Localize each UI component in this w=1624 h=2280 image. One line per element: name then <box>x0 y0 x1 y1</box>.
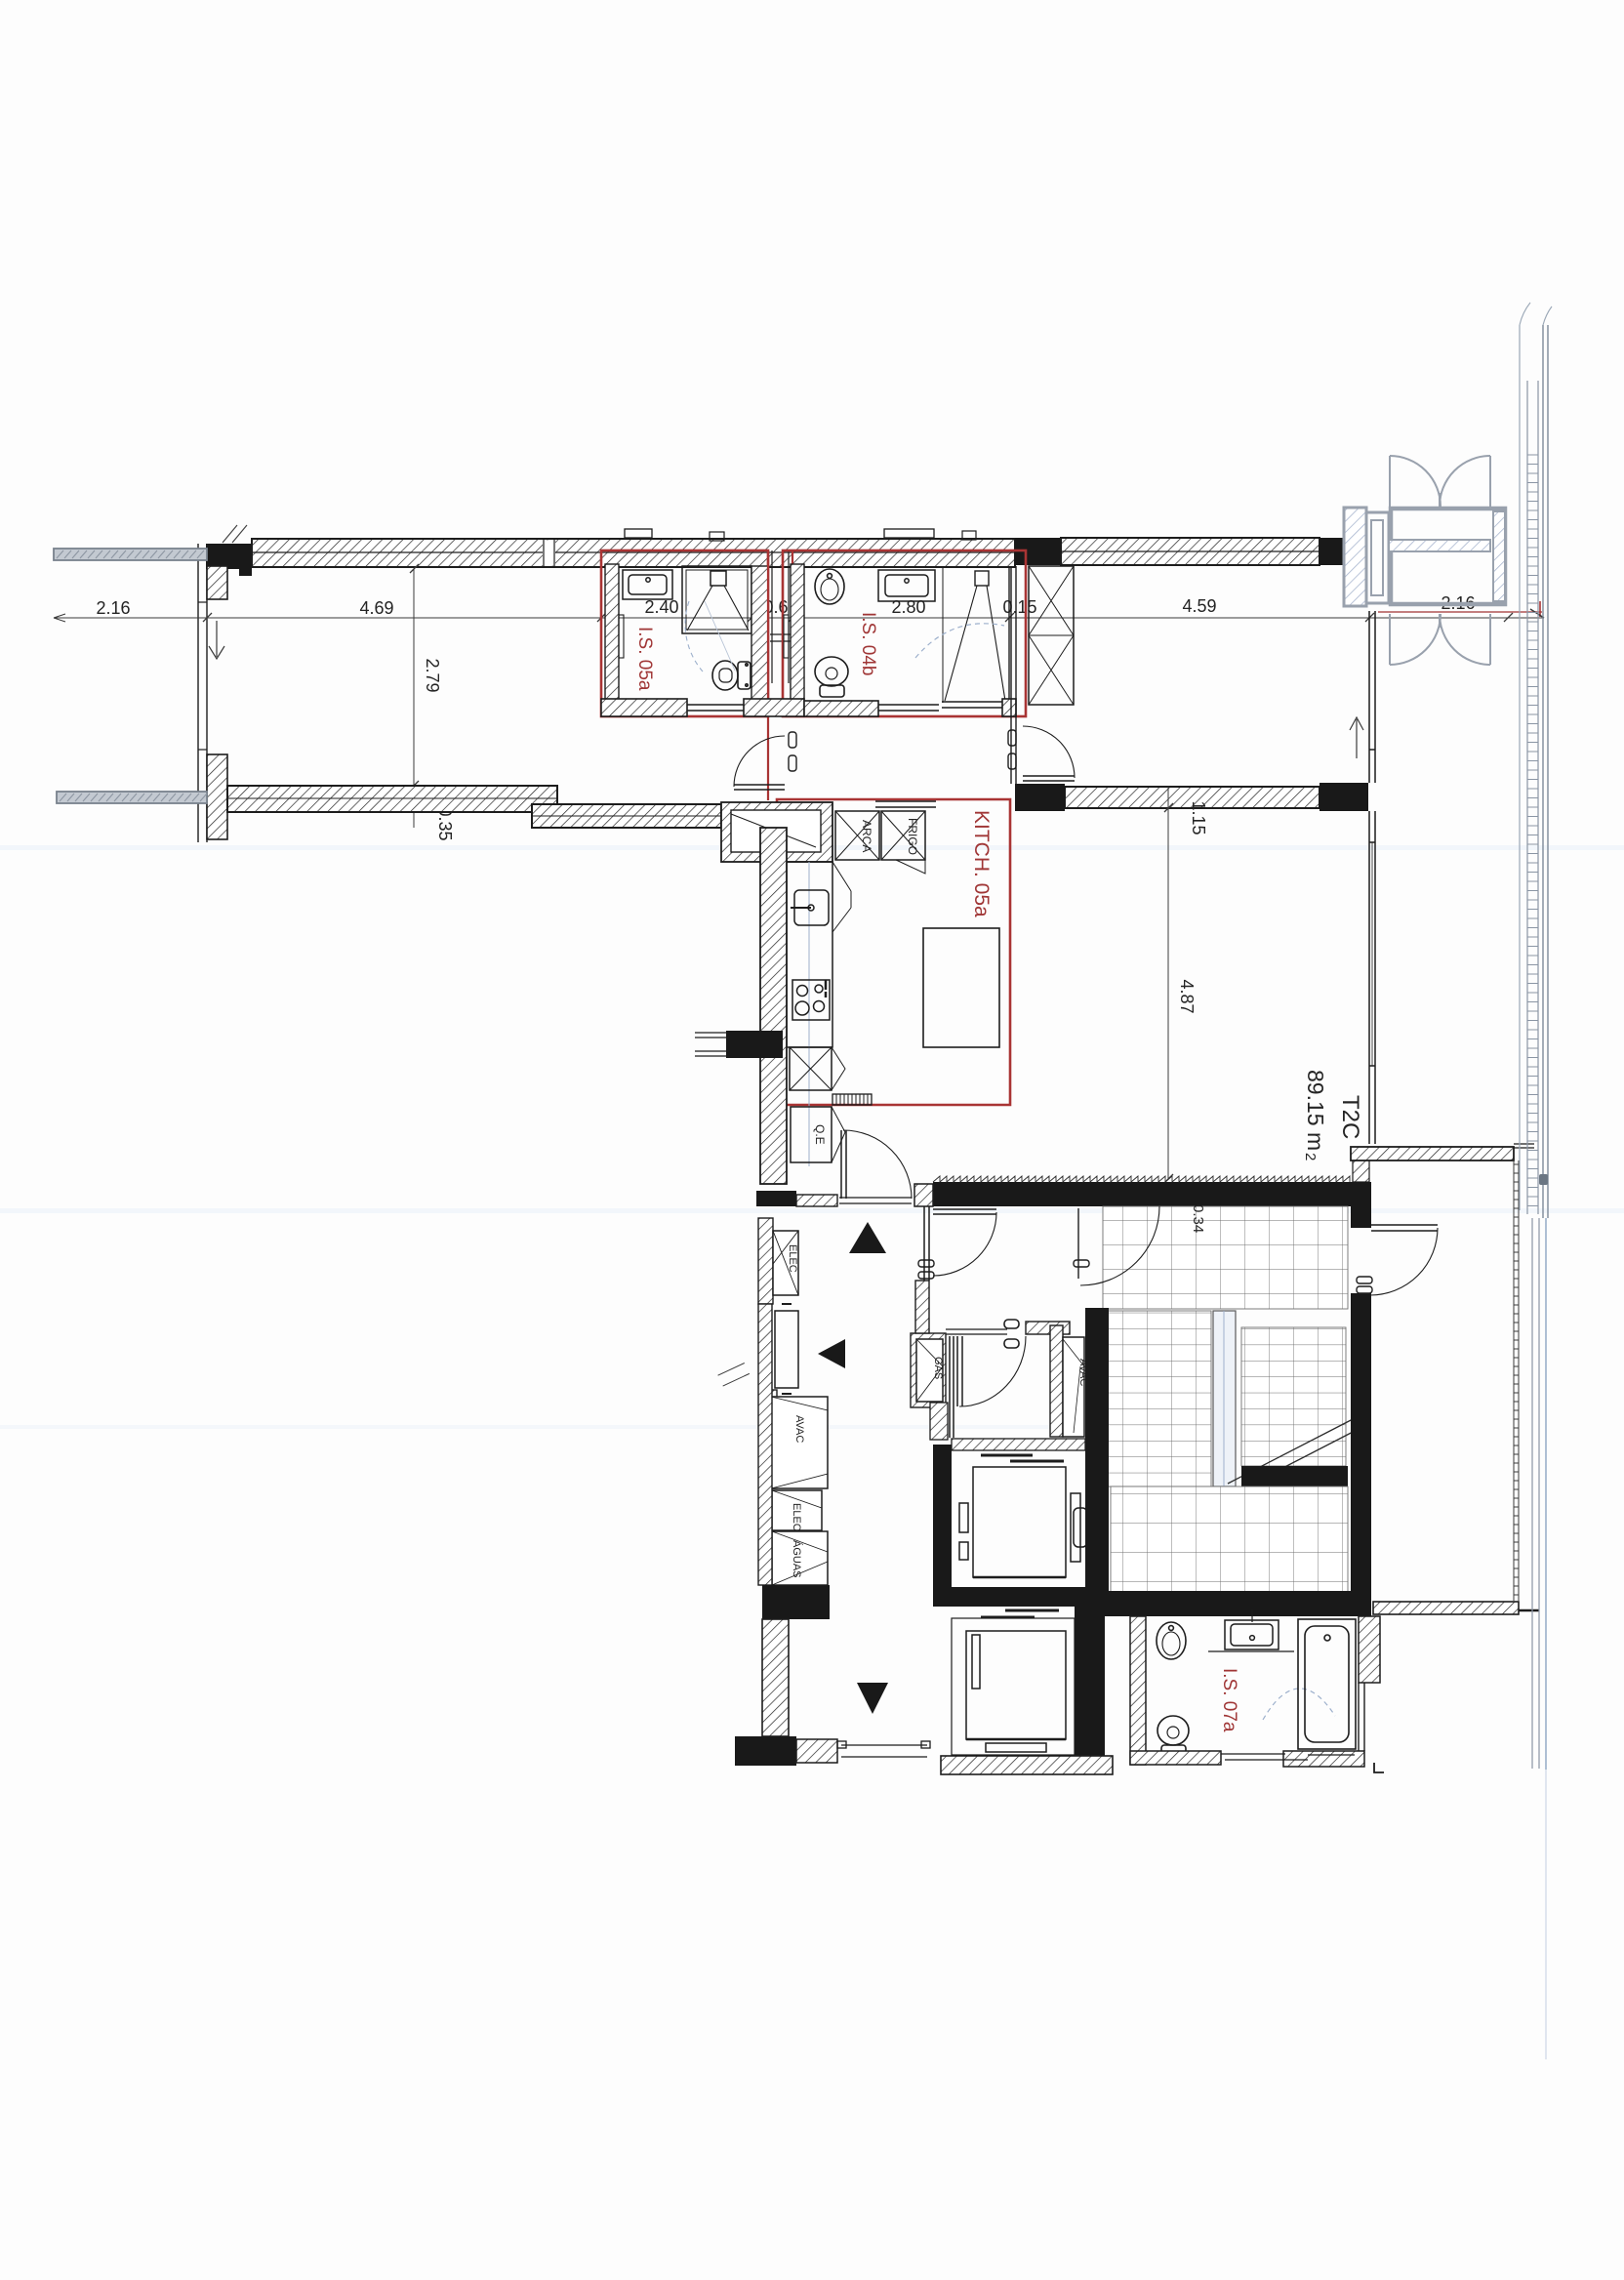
svg-text:2.16: 2.16 <box>96 598 130 618</box>
svg-text:AVAC: AVAC <box>793 1415 805 1443</box>
svg-text:2.79: 2.79 <box>423 658 442 692</box>
svg-text:I.S. 04b: I.S. 04b <box>858 612 878 676</box>
svg-text:4.59: 4.59 <box>1182 596 1216 616</box>
svg-text:0.15: 0.15 <box>1002 597 1036 617</box>
svg-text:ÁGUAS: ÁGUAS <box>791 1540 803 1578</box>
svg-text:ELEC: ELEC <box>791 1503 802 1531</box>
svg-text:1.15: 1.15 <box>1189 800 1208 835</box>
svg-text:2.40: 2.40 <box>644 597 678 617</box>
svg-text:4.69: 4.69 <box>359 598 393 618</box>
svg-text:T2C: T2C <box>1337 1095 1363 1139</box>
svg-text:Q.E: Q.E <box>813 1124 827 1145</box>
svg-text:I.S. 05a: I.S. 05a <box>634 627 655 691</box>
svg-text:2.80: 2.80 <box>891 597 925 617</box>
svg-text:FRIGO: FRIGO <box>906 818 919 855</box>
svg-text:ARCA: ARCA <box>860 820 873 852</box>
svg-text:0.34: 0.34 <box>1190 1204 1206 1233</box>
svg-text:I.S. 07a: I.S. 07a <box>1219 1668 1239 1732</box>
svg-text:89.15 m: 89.15 m <box>1303 1070 1328 1151</box>
svg-text:GAS: GAS <box>932 1357 944 1379</box>
svg-text:KITCH. 05a: KITCH. 05a <box>970 810 993 917</box>
svg-text:2: 2 <box>1302 1153 1319 1160</box>
svg-text:4.87: 4.87 <box>1177 979 1197 1013</box>
svg-text:ELEC: ELEC <box>787 1244 798 1273</box>
